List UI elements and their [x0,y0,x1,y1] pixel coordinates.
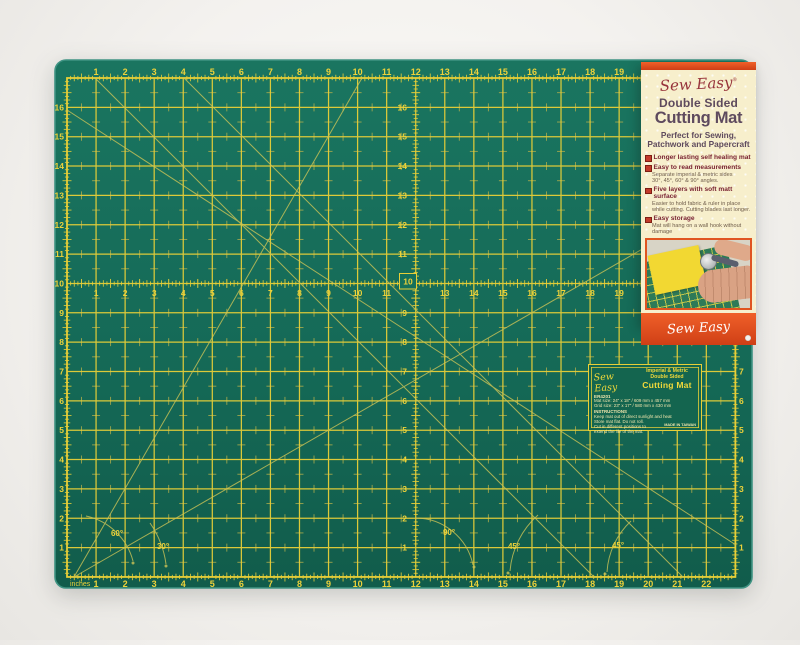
svg-text:1: 1 [94,67,99,77]
svg-text:9: 9 [402,308,407,318]
mat-info-label: Sew Easy Imperial & Metric Double Sided … [588,364,702,431]
svg-text:90°: 90° [443,528,455,537]
svg-text:18: 18 [585,288,595,298]
svg-text:3: 3 [739,484,744,494]
svg-text:3: 3 [152,579,157,589]
svg-text:9: 9 [326,67,331,77]
feature-detail: Easier to hold fabric & ruler in place [652,201,752,207]
svg-text:3: 3 [402,484,407,494]
packaging-subtitle: Perfect for Sewing, Patchwork and Paperc… [645,131,752,150]
svg-text:15: 15 [498,288,508,298]
feature-detail: 30°, 45°, 60° & 90° angles. [652,178,752,184]
svg-text:6: 6 [239,288,244,298]
svg-text:6: 6 [239,67,244,77]
svg-text:6: 6 [59,396,64,406]
svg-text:2: 2 [739,513,744,523]
mat-label-instruction-line: extend the life of the mat. [594,430,696,435]
svg-text:16: 16 [55,102,65,112]
svg-text:2: 2 [123,67,128,77]
svg-text:2: 2 [123,579,128,589]
svg-text:10: 10 [403,277,413,287]
svg-text:15: 15 [498,579,508,589]
packaging-body: Sew Easy® Double Sided Cutting Mat Perfe… [641,70,756,313]
svg-text:14: 14 [469,579,479,589]
svg-text:7: 7 [268,67,273,77]
hang-hole [745,335,751,341]
svg-text:15: 15 [498,67,508,77]
svg-text:4: 4 [59,455,64,465]
svg-text:1: 1 [739,543,744,553]
packaging-brand-script: Sew Easy® [645,69,753,96]
svg-text:11: 11 [382,288,391,298]
svg-text:10: 10 [353,579,363,589]
svg-text:16: 16 [398,102,408,112]
svg-text:9: 9 [326,288,331,298]
svg-text:5: 5 [210,67,215,77]
packaging-title-double-sided: Double Sided [645,96,752,110]
svg-text:5: 5 [402,425,407,435]
svg-text:13: 13 [440,579,450,589]
svg-text:2: 2 [59,513,64,523]
svg-text:4: 4 [181,67,186,77]
svg-text:10: 10 [55,278,65,288]
bullet-square-icon [645,165,652,172]
svg-text:30°: 30° [157,542,169,551]
svg-text:16: 16 [527,67,537,77]
svg-text:7: 7 [268,288,273,298]
bullet-square-icon [645,217,652,224]
svg-text:15: 15 [55,132,65,142]
svg-text:14: 14 [469,288,479,298]
svg-text:17: 17 [556,67,566,77]
svg-text:8: 8 [402,337,407,347]
feature-title: Longer lasting self healing mat [654,154,751,161]
svg-text:1: 1 [59,543,64,553]
svg-text:19: 19 [614,67,624,77]
packaging-footer-band: Sew Easy [641,313,756,345]
svg-text:19: 19 [614,579,624,589]
svg-text:2: 2 [402,513,407,523]
svg-text:13: 13 [440,67,450,77]
svg-text:45°: 45° [508,542,520,551]
svg-text:8: 8 [297,67,302,77]
svg-text:13: 13 [398,190,408,200]
registered-mark: ® [732,77,737,83]
svg-text:4: 4 [739,455,744,465]
feature-detail: Mat will hang on a wall hook without dam… [652,223,752,236]
svg-text:12: 12 [398,220,408,230]
svg-text:11: 11 [55,249,64,259]
svg-text:inches: inches [70,581,91,588]
svg-text:10: 10 [353,67,363,77]
svg-text:5: 5 [59,425,64,435]
product-photo-scene: 1234567891011121314151617181912345678910… [0,0,800,640]
svg-text:15: 15 [398,132,408,142]
bullet-square-icon [645,188,652,195]
svg-text:3: 3 [59,484,64,494]
packaging-insert: Sew Easy® Double Sided Cutting Mat Perfe… [641,62,756,325]
svg-text:7: 7 [59,367,64,377]
feature-detail: while cutting. Cutting blades last longe… [652,207,752,213]
svg-text:1: 1 [402,543,407,553]
svg-text:19: 19 [614,288,624,298]
svg-text:8: 8 [59,337,64,347]
svg-text:14: 14 [398,161,408,171]
svg-text:17: 17 [556,288,566,298]
feature-item: Five layers with soft matt surfaceEasier… [645,186,752,213]
svg-text:2: 2 [123,288,128,298]
svg-text:8: 8 [297,288,302,298]
svg-text:4: 4 [181,579,186,589]
svg-text:6: 6 [402,396,407,406]
svg-text:16: 16 [527,579,537,589]
svg-text:6: 6 [239,579,244,589]
feature-title: Easy to read measurements [654,164,742,171]
svg-text:1: 1 [94,579,99,589]
svg-text:14: 14 [469,67,479,77]
svg-text:60°: 60° [111,529,123,538]
svg-text:5: 5 [739,425,744,435]
svg-text:8: 8 [297,579,302,589]
svg-text:3: 3 [152,288,157,298]
svg-text:9: 9 [59,308,64,318]
feature-item: Longer lasting self healing mat [645,154,752,162]
svg-text:5: 5 [210,579,215,589]
feature-item: Easy to read measurementsSeparate imperi… [645,164,752,185]
feature-list: Longer lasting self healing matEasy to r… [645,154,752,238]
svg-text:1: 1 [94,288,99,298]
svg-text:22: 22 [701,579,711,589]
feature-title: Easy storage [654,215,695,222]
svg-text:14: 14 [55,161,65,171]
svg-text:16: 16 [527,288,537,298]
svg-text:21: 21 [672,579,682,589]
footer-brand-script: Sew Easy [667,319,731,337]
svg-text:4: 4 [181,288,186,298]
svg-text:7: 7 [402,367,407,377]
svg-text:4: 4 [402,455,407,465]
svg-text:12: 12 [411,67,421,77]
svg-text:7: 7 [739,367,744,377]
svg-text:12: 12 [411,579,421,589]
packaging-photo [645,238,752,310]
feature-title: Five layers with soft matt surface [654,186,753,201]
svg-text:13: 13 [440,288,450,298]
mat-label-brand-script: Sew Easy [593,367,639,394]
svg-text:5: 5 [210,288,215,298]
svg-text:45°: 45° [612,541,624,550]
feature-item: Easy storageMat will hang on a wall hook… [645,215,752,236]
mat-label-made-in: MADE IN TAIWAN [664,423,696,427]
svg-text:13: 13 [55,190,65,200]
svg-text:12: 12 [55,220,65,230]
packaging-title-cutting-mat: Cutting Mat [645,110,752,127]
svg-text:18: 18 [585,579,595,589]
svg-text:17: 17 [556,579,566,589]
svg-text:20: 20 [643,579,653,589]
svg-text:9: 9 [326,579,331,589]
svg-text:3: 3 [152,67,157,77]
svg-text:18: 18 [585,67,595,77]
svg-text:6: 6 [739,396,744,406]
svg-text:11: 11 [382,579,392,589]
svg-text:11: 11 [382,67,392,77]
mat-label-heading-cutting-mat: Cutting Mat [638,381,696,390]
svg-text:11: 11 [398,249,407,259]
svg-text:7: 7 [268,579,273,589]
svg-text:10: 10 [353,288,363,298]
bullet-square-icon [645,155,652,162]
packaging-top-band [641,62,756,70]
